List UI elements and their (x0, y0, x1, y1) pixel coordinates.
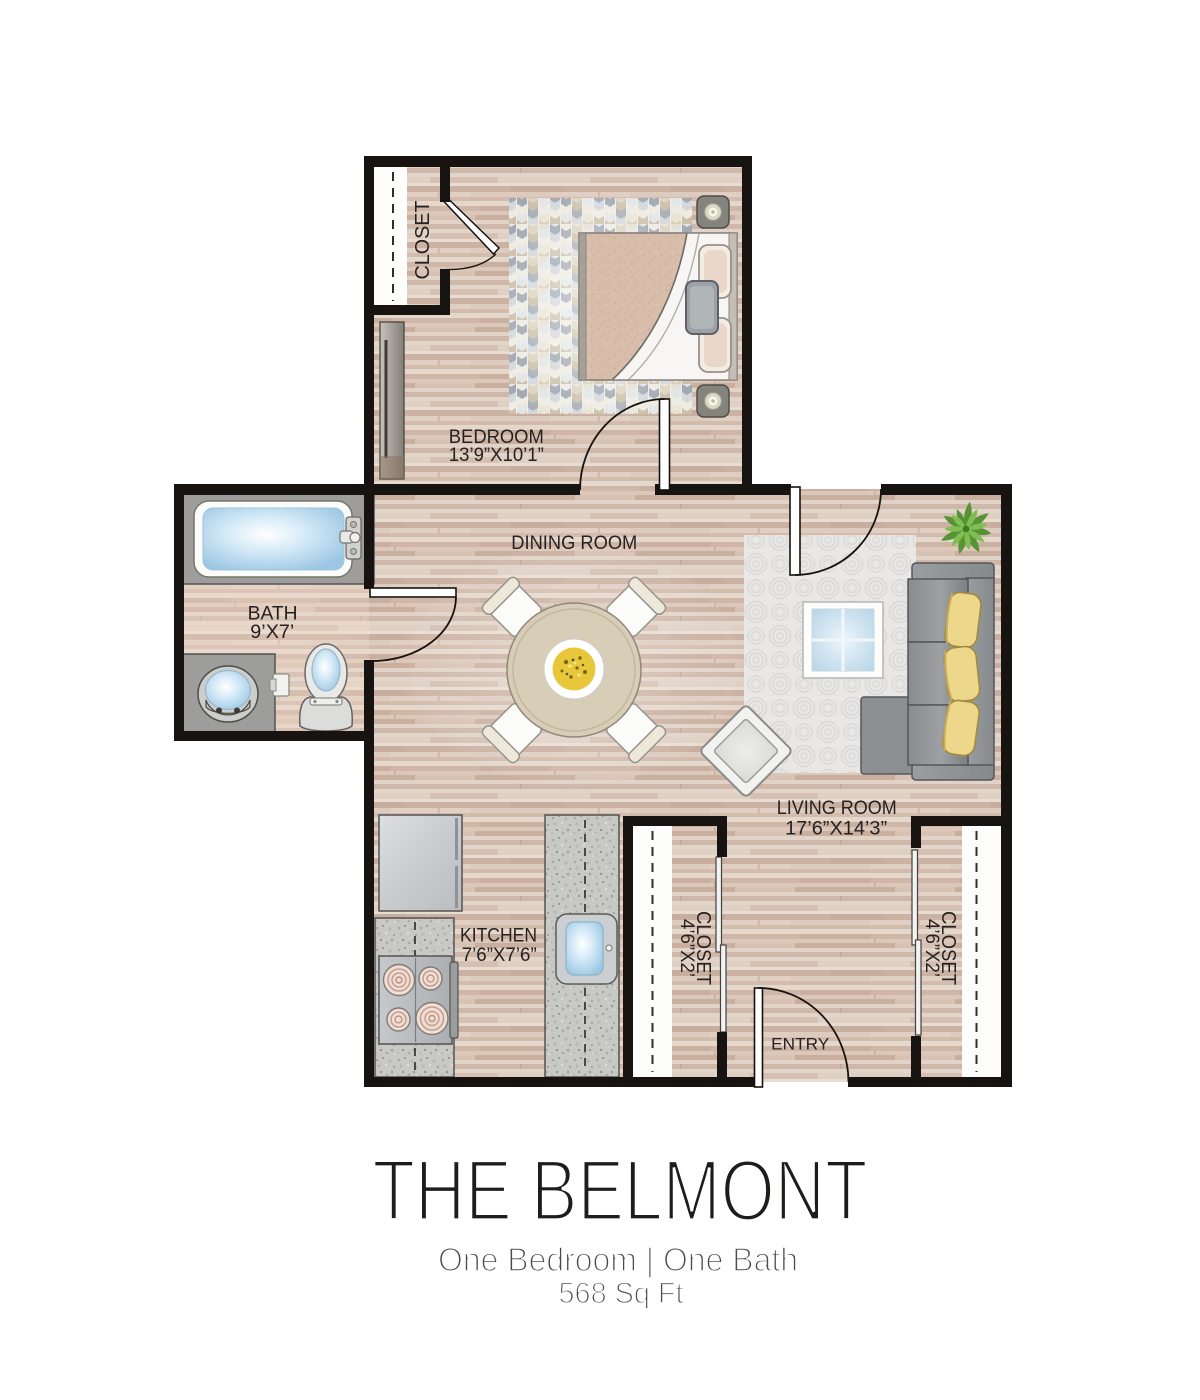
svg-text:CLOSET: CLOSET (411, 200, 434, 279)
svg-text:THE BELMONT: THE BELMONT (373, 1143, 868, 1239)
svg-text:DINING ROOM: DINING ROOM (511, 533, 637, 554)
svg-text:4’6”X2’: 4’6”X2’ (921, 919, 942, 977)
svg-text:9’X7’: 9’X7’ (250, 622, 294, 643)
svg-text:17’6”X14’3”: 17’6”X14’3” (785, 819, 887, 840)
svg-text:LIVING ROOM: LIVING ROOM (777, 798, 897, 819)
svg-text:568 Sq Ft: 568 Sq Ft (559, 1277, 685, 1310)
svg-text:13’9”X10’1”: 13’9”X10’1” (449, 445, 544, 466)
svg-text:KITCHEN: KITCHEN (460, 926, 537, 947)
svg-text:ENTRY: ENTRY (771, 1036, 829, 1054)
svg-text:One Bedroom | One Bath: One Bedroom | One Bath (438, 1241, 798, 1278)
svg-text:7’6”X7’6”: 7’6”X7’6” (462, 945, 537, 966)
svg-text:4’6”X2’: 4’6”X2’ (676, 919, 697, 977)
